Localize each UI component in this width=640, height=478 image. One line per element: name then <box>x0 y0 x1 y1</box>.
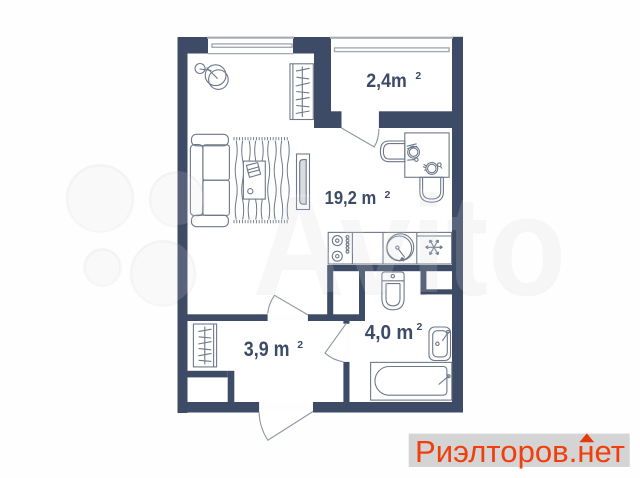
svg-text:2,4m: 2,4m <box>366 70 407 92</box>
svg-text:2: 2 <box>297 339 303 351</box>
svg-text:Avito: Avito <box>253 164 566 323</box>
svg-text:Риэлторов.нет: Риэлторов.нет <box>415 435 625 469</box>
svg-text:3,9 m: 3,9 m <box>244 337 290 361</box>
svg-text:4,0 m: 4,0 m <box>365 322 414 344</box>
svg-text:19,2 m: 19,2 m <box>325 187 377 208</box>
svg-text:2: 2 <box>415 70 421 82</box>
svg-text:2: 2 <box>385 189 391 201</box>
svg-text:2: 2 <box>417 321 423 333</box>
